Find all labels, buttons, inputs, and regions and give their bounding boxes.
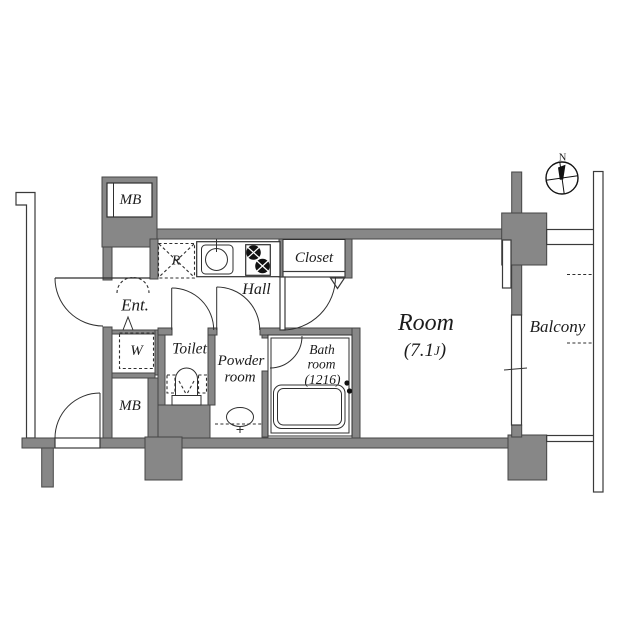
refrigerator-label: R	[171, 254, 181, 269]
room-size-label: (7.1J)	[404, 340, 446, 361]
wall-toilet-pipe-block	[158, 405, 210, 440]
kitchen-counter	[197, 242, 280, 277]
toilet-bowl-dash-1	[179, 381, 186, 393]
bath-label-2: room	[307, 357, 335, 372]
mb-top: MB	[107, 183, 152, 217]
slit-window	[503, 240, 512, 288]
toilet-door	[172, 288, 214, 330]
wall-toilet-powder	[208, 335, 215, 405]
wall-closet-right	[345, 239, 352, 278]
room-door	[280, 277, 336, 330]
room-size-close: )	[439, 340, 446, 361]
toilet-wing-left	[167, 375, 175, 393]
stove-burner-2	[255, 259, 270, 274]
wall-right-lower	[512, 425, 522, 437]
pillar-bottom-right	[508, 435, 547, 480]
bath-label-1: Bath	[309, 342, 335, 357]
toilet-wing-right	[199, 375, 207, 393]
service-door-arc	[55, 393, 100, 438]
bathtub-outer	[274, 385, 346, 429]
wall-right-upper	[512, 265, 522, 315]
hall-label: Hall	[241, 281, 271, 298]
wall-toilet-left	[158, 335, 165, 405]
bathtub-inner	[278, 389, 342, 426]
floor-plan-canvas: MB MB Ent. R	[0, 0, 640, 640]
bath-faucet-knob-2	[347, 388, 352, 393]
room-balcony-window	[512, 315, 522, 425]
toilet-bowl-dash-2	[188, 381, 195, 393]
shoe-cabinet-arc-right	[134, 278, 150, 294]
balcony-label: Balcony	[530, 317, 586, 336]
shoe-cabinet-arc-left	[117, 278, 133, 294]
room-door-leaf	[280, 277, 285, 330]
wall-left-above-door	[103, 247, 112, 280]
wall-hall-bath-top	[260, 328, 352, 335]
main-room: Room (7.1J)	[397, 310, 454, 361]
bath-door-arc	[270, 336, 302, 368]
bath-room: Bath room (1216)	[268, 335, 352, 436]
room-size-open: (7.1	[404, 340, 434, 361]
balcony-partition-top	[547, 230, 595, 245]
room-door-arc	[283, 277, 336, 330]
service-door	[55, 393, 100, 448]
corridor-outline	[16, 193, 35, 439]
wall-powder-bath-lower	[262, 371, 268, 437]
wall-ent-w-divider	[112, 330, 158, 334]
door-latch-mark	[331, 278, 345, 289]
room-label: Room	[397, 310, 454, 336]
wall-powder-bath-upper	[262, 335, 268, 338]
entrance-label: Ent.	[120, 296, 149, 315]
wall-toilet-powder-top	[208, 328, 217, 335]
stove-burner-1	[246, 245, 261, 260]
balcony-rail	[594, 172, 604, 493]
wall-bottom-left	[22, 438, 55, 448]
entrance-door-arc	[55, 278, 103, 326]
compass: N	[546, 153, 578, 195]
powder-label-2: room	[224, 370, 255, 386]
toilet: Toilet	[167, 341, 208, 406]
powder-label-1: Powder	[217, 353, 265, 369]
toilet-label: Toilet	[172, 341, 207, 358]
wall-hall-toilet-top	[158, 328, 172, 335]
balcony-partition-bottom	[547, 436, 594, 442]
wall-left-below-door	[103, 327, 112, 440]
closet-label: Closet	[295, 250, 334, 266]
kitchen: R	[159, 240, 281, 279]
washer-space: W	[120, 333, 154, 369]
toilet-tank	[172, 396, 201, 406]
mb-top-label: MB	[119, 192, 142, 208]
bath-faucet-knob-1	[344, 380, 349, 385]
floor-plan: MB MB Ent. R	[0, 0, 640, 640]
closet-sliding-front	[283, 272, 345, 278]
wall-kitchen-ent-stub	[150, 239, 158, 279]
wall-stub-above-pillar	[512, 172, 522, 213]
wall-bottom-stub	[42, 448, 54, 487]
wall-w-mb-divider	[112, 373, 155, 378]
powder-room: Powder room	[215, 353, 264, 433]
wall-bath-room	[352, 328, 360, 438]
washer-label: W	[130, 343, 144, 359]
toilet-door-arc	[172, 288, 214, 330]
service-door-opening	[55, 438, 100, 448]
wash-basin	[227, 408, 254, 427]
entrance-step-mark	[123, 317, 133, 330]
entrance: Ent.	[55, 278, 150, 331]
wall-top	[157, 229, 502, 239]
mb-bottom-label: MB	[118, 398, 141, 414]
pillar-bottom-left	[145, 437, 182, 480]
